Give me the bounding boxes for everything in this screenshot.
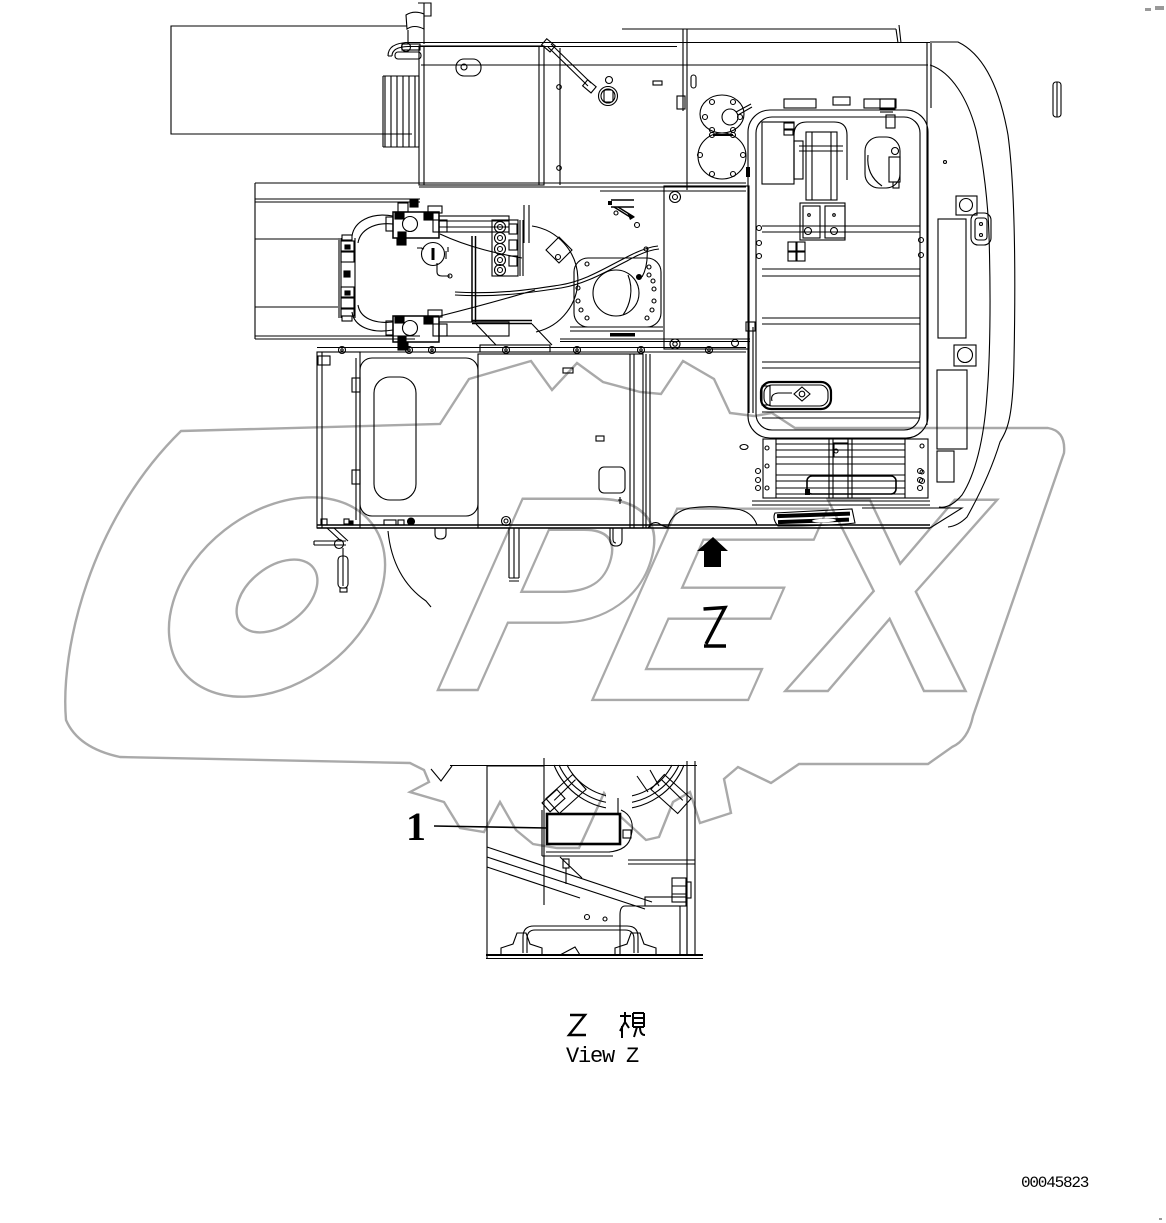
svg-text:00045823: 00045823	[1021, 1174, 1089, 1192]
svg-text:View Z: View Z	[566, 1044, 639, 1069]
svg-text:1: 1	[406, 804, 426, 849]
svg-text:X: X	[785, 439, 998, 750]
